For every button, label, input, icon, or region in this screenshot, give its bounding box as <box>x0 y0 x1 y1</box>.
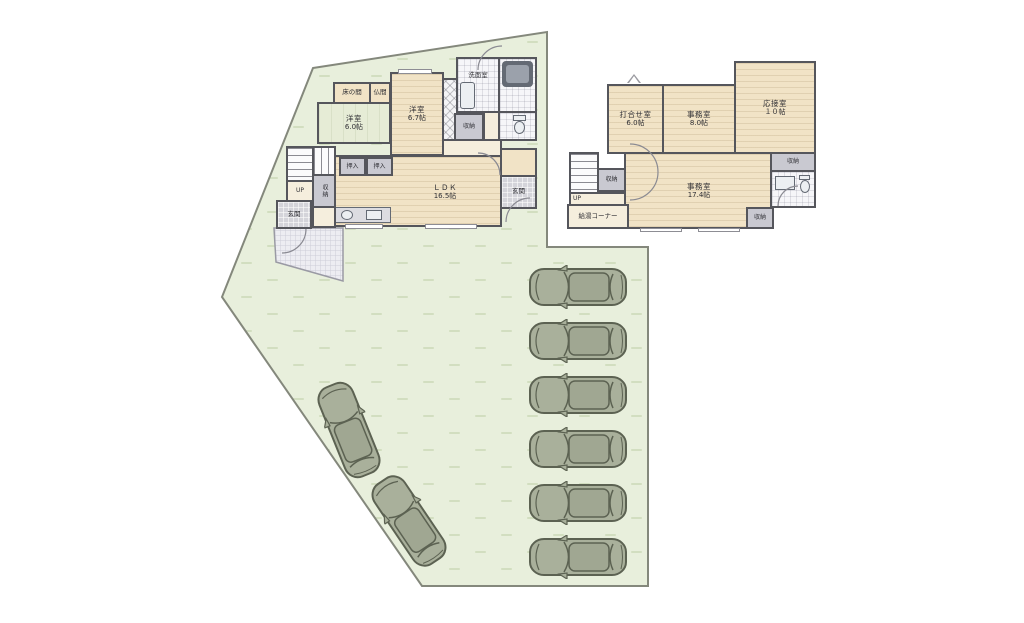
closet-label: 収納 <box>754 215 766 221</box>
room-size: １０帖 <box>765 108 786 116</box>
closet-label: 収納 <box>605 177 617 183</box>
closet-2f-bottom: 収納 <box>746 207 774 229</box>
bathtub-icon <box>502 61 533 87</box>
kitchen-sink-icon <box>341 210 353 220</box>
room-meeting: 打合せ室 6.0帖 <box>607 84 664 154</box>
closet-entry: 収納 <box>312 174 336 208</box>
room-size: 6.0帖 <box>626 119 644 127</box>
room-label: 応接室 <box>763 99 787 108</box>
parked-car-diagonal-icon <box>363 467 455 575</box>
staircase-2f <box>569 152 599 194</box>
room-size: 17.4帖 <box>688 191 711 199</box>
parked-car-icon <box>528 481 628 525</box>
parked-car-icon <box>528 373 628 417</box>
entrance-approach-hatch <box>274 228 343 281</box>
room-label: 事務室 <box>687 110 711 119</box>
room-label: 打合せ室 <box>620 110 652 119</box>
closet-oshiire-a: 押入 <box>339 157 366 176</box>
room-label: 給湯コーナー <box>579 213 618 220</box>
closet-2f-right: 収納 <box>770 152 816 172</box>
room-label: 事務室 <box>687 182 711 191</box>
staircase-1f-run <box>286 146 314 182</box>
up-label: UP <box>573 196 581 202</box>
window <box>640 228 682 232</box>
parked-car-icon <box>528 265 628 309</box>
hallway-1f-side <box>483 111 500 141</box>
closet-label: 押入 <box>373 164 385 170</box>
room-label: 床の間 <box>342 89 362 96</box>
room-label: 洋室 <box>409 105 425 114</box>
closet-label: 収納 <box>463 124 475 130</box>
window <box>698 228 740 232</box>
toilet-icon <box>800 180 810 193</box>
room-western-6-7: 洋室 6.7帖 <box>390 72 444 156</box>
toilet-icon <box>514 121 525 134</box>
kitchen-stove-icon <box>366 210 382 220</box>
up-label: UP <box>296 188 304 194</box>
parked-car-icon <box>528 319 628 363</box>
room-size: 6.0帖 <box>345 123 363 131</box>
door-arc-entrance-left <box>282 229 306 253</box>
room-label: 仏間 <box>374 89 387 96</box>
parked-car-diagonal-icon <box>310 375 388 484</box>
room-western-6-0: 洋室 6.0帖 <box>317 102 391 144</box>
room-entrance-left: 玄関 <box>276 200 312 229</box>
closet-washroom: 収納 <box>454 113 484 141</box>
room-butsuma: 仏間 <box>369 82 391 104</box>
closet-label: 収納 <box>321 184 327 198</box>
room-label: 玄関 <box>288 211 301 218</box>
room-tokonoma: 床の間 <box>333 82 371 104</box>
site-floorplan-canvas: 床の間 仏間 洋室 6.0帖 洋室 6.7帖 洗面室 収納 ＬＤＫ 16.5帖 … <box>0 0 1024 623</box>
hall-to-kitchen <box>312 206 336 228</box>
parked-car-icon <box>528 535 628 579</box>
window <box>345 224 383 229</box>
foyer-right <box>500 148 537 177</box>
room-label: 洗面室 <box>468 72 488 79</box>
room-size: 6.7帖 <box>408 114 426 122</box>
closet-label: 収納 <box>787 159 799 165</box>
entry-hall-left: UP <box>286 180 314 202</box>
closet-oshiire-b: 押入 <box>366 157 393 176</box>
window <box>398 69 432 74</box>
room-office-8: 事務室 8.0帖 <box>662 84 736 154</box>
closet-2f-stairs: 収納 <box>597 168 626 192</box>
room-reception: 応接室 １０帖 <box>734 61 816 154</box>
staircase-1f-turn <box>312 146 336 176</box>
room-hot-water-corner: 給湯コーナー <box>567 204 629 229</box>
washbasin-icon <box>460 82 475 109</box>
room-entrance-right: 玄関 <box>500 175 537 209</box>
closet-label: 押入 <box>346 164 358 170</box>
parked-car-icon <box>528 427 628 471</box>
roof-vent-marker-icon <box>627 74 641 83</box>
washbasin-icon <box>775 176 795 190</box>
room-size: 8.0帖 <box>690 119 708 127</box>
room-label: 玄関 <box>512 188 525 195</box>
window <box>425 224 477 229</box>
room-label: 洋室 <box>346 114 362 123</box>
room-label-ldk: ＬＤＫ 16.5帖 <box>400 180 490 204</box>
